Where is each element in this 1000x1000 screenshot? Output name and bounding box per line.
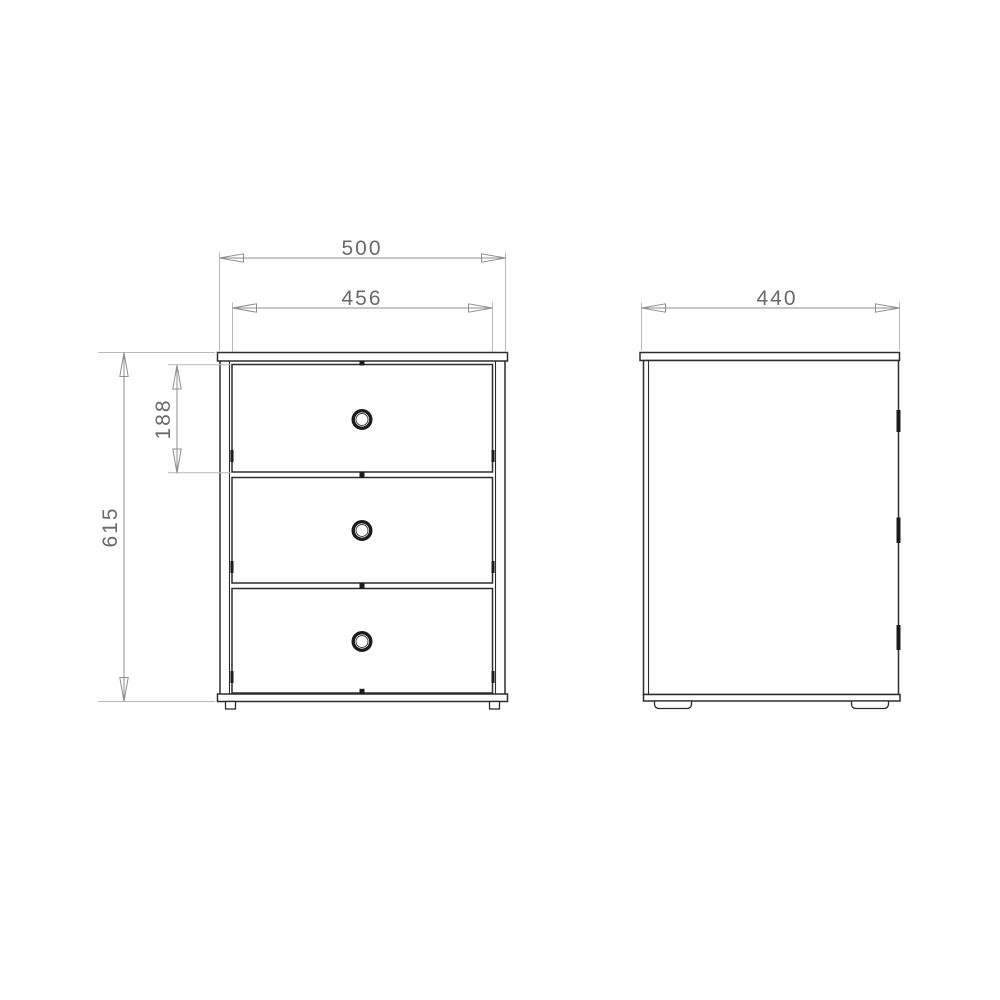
furniture-technical-drawing: 500 456 440 615 188 (0, 0, 1000, 1000)
drawer-1-front (232, 365, 493, 473)
front-plinth (218, 694, 508, 702)
side-left-foot (655, 701, 692, 709)
side-top-panel (640, 353, 900, 361)
front-left-foot (226, 702, 236, 710)
side-plinth (644, 695, 901, 702)
dimension-top-drawer-height: 188 (152, 365, 231, 473)
dimension-side-depth: 440 (642, 287, 900, 351)
front-right-foot (490, 702, 500, 710)
drawer-3-front (232, 589, 493, 694)
dimension-label-overall-height: 615 (99, 506, 122, 547)
dimension-label-overall-width: 500 (341, 237, 382, 260)
dimension-label-depth: 440 (756, 287, 797, 310)
technical-drawing-canvas: 500 456 440 615 188 (0, 0, 1000, 1000)
dimension-front-drawer-width: 456 (233, 287, 493, 352)
drawer-2-front (232, 478, 493, 584)
side-view (640, 353, 901, 709)
dimension-label-top-drawer-height: 188 (152, 398, 175, 439)
side-right-foot (852, 701, 889, 709)
side-panel-body (644, 361, 899, 695)
dimension-label-drawer-width: 456 (341, 287, 382, 310)
front-view (218, 353, 508, 710)
front-top-panel (218, 353, 508, 362)
